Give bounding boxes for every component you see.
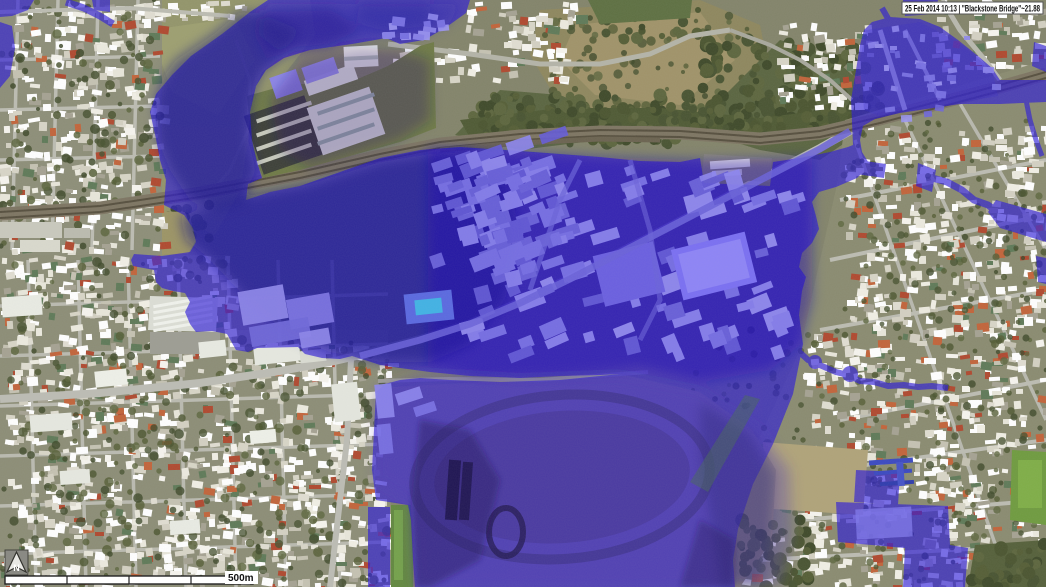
svg-text:500m: 500m [228,573,254,584]
svg-text:N: N [13,563,20,573]
svg-text:25 Feb 2014 10:13 | "Blackston: 25 Feb 2014 10:13 | "Blackstone Bridge"~… [905,4,1040,14]
